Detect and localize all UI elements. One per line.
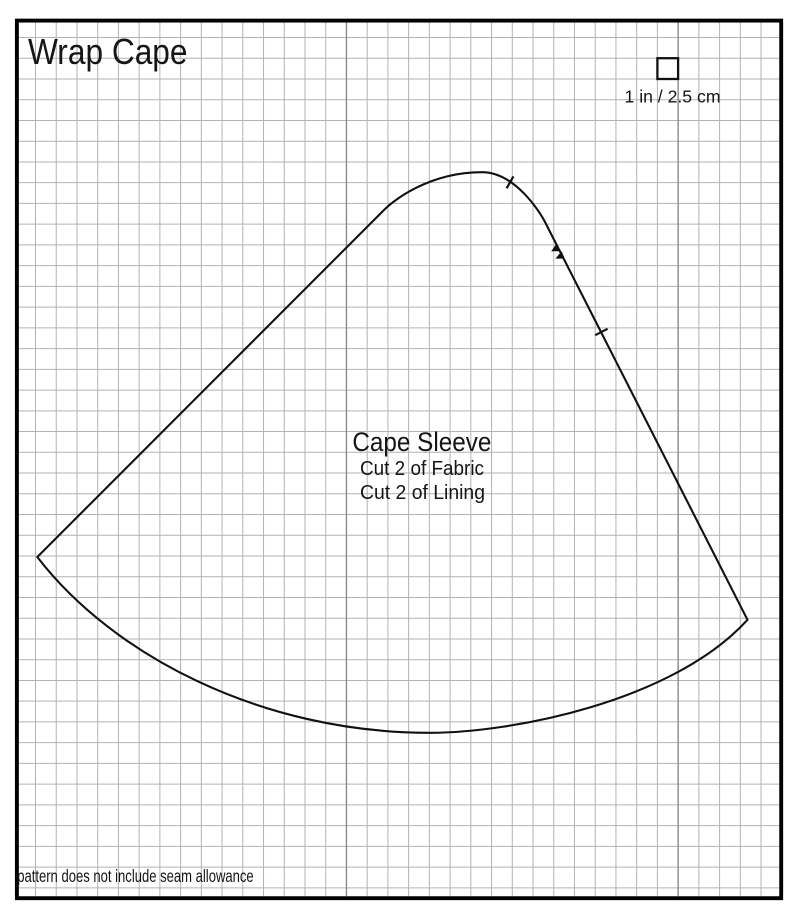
svg-text:Cut 2 of Lining: Cut 2 of Lining xyxy=(360,482,485,504)
svg-text:pattern does not include seam: pattern does not include seam allowance xyxy=(17,866,254,886)
svg-text:1 in / 2.5 cm: 1 in / 2.5 cm xyxy=(625,87,721,107)
svg-text:Cut 2 of Fabric: Cut 2 of Fabric xyxy=(360,458,484,480)
svg-text:Wrap Cape: Wrap Cape xyxy=(28,31,188,72)
svg-text:Cape Sleeve: Cape Sleeve xyxy=(352,427,491,457)
